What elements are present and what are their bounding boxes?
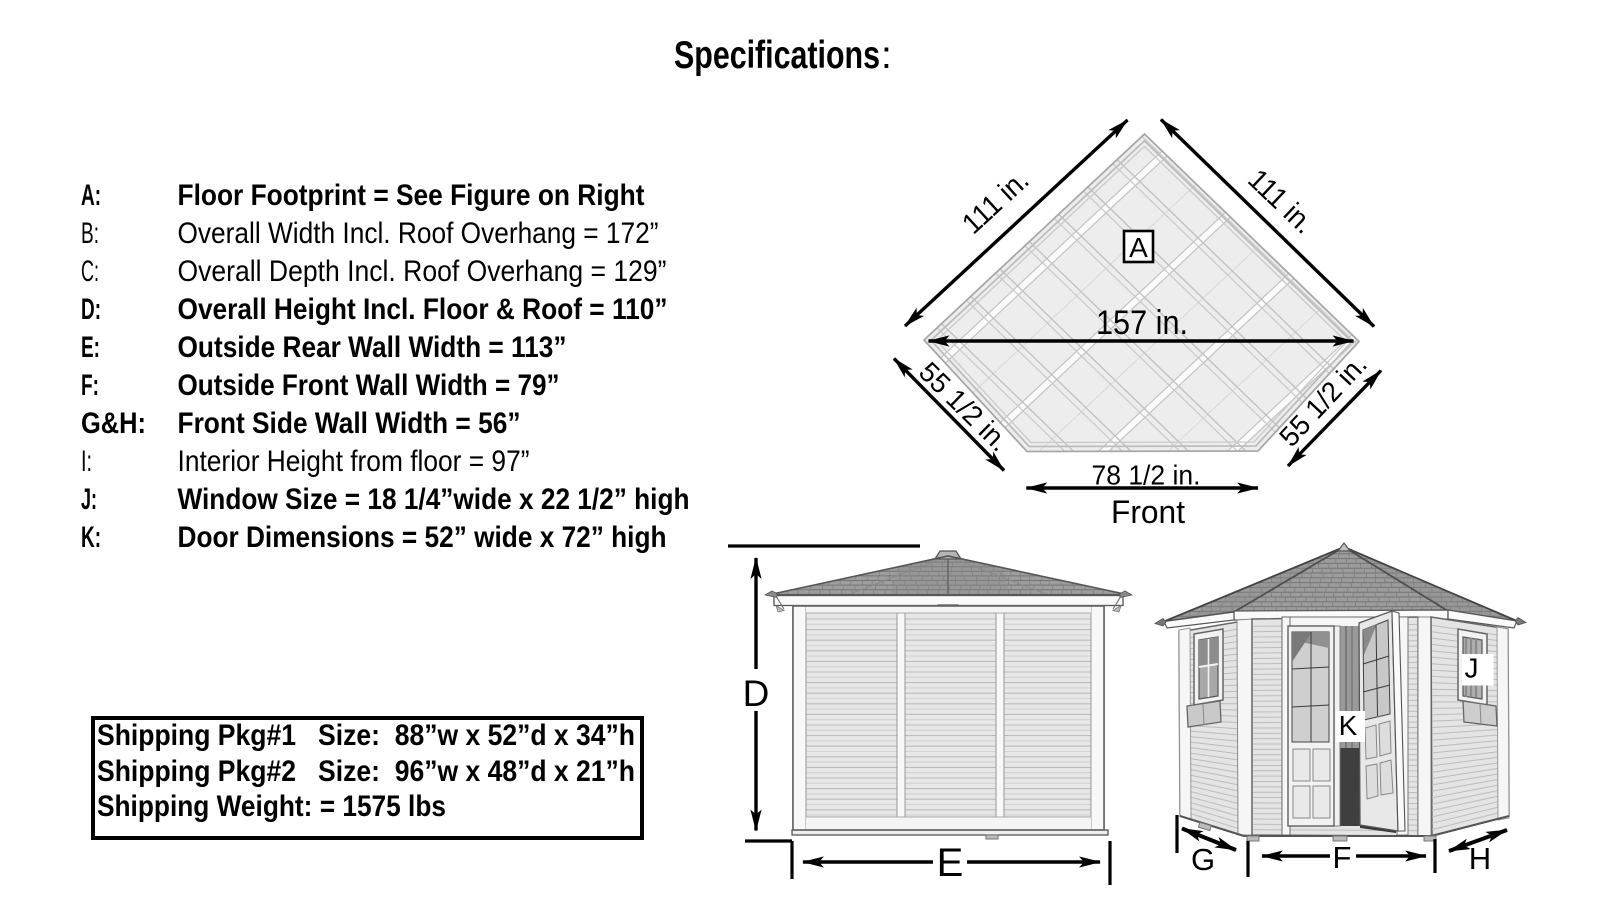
svg-text:J: J xyxy=(1465,653,1479,684)
svg-text:H: H xyxy=(1469,841,1491,876)
svg-text:Shipping Pkg#1 Size: 88”w x: Shipping Pkg#1 Size: 88”w x 52”d x 34”h xyxy=(97,719,635,752)
svg-text:E: E xyxy=(937,841,964,885)
svg-text:Overall Height Incl. Floor & R: Overall Height Incl. Floor & Roof = 110” xyxy=(178,293,668,326)
svg-text:Front: Front xyxy=(1111,494,1185,530)
svg-text:K:: K: xyxy=(81,521,101,554)
svg-text:Front Side Wall Width = 56”: Front Side Wall Width = 56” xyxy=(178,407,521,440)
svg-text:Interior Height from floor = 9: Interior Height from floor = 97” xyxy=(178,445,530,478)
svg-text:G: G xyxy=(1191,842,1215,877)
svg-text:F:: F: xyxy=(81,369,99,402)
svg-text:Outside Front Wall Width = 79”: Outside Front Wall Width = 79” xyxy=(178,369,560,402)
svg-text:I:: I: xyxy=(81,445,92,478)
svg-text:Specifications: Specifications xyxy=(674,34,880,77)
svg-text:D: D xyxy=(743,673,770,714)
svg-text:Door Dimensions = 52” wide x 7: Door Dimensions = 52” wide x 72” high xyxy=(178,521,667,554)
svg-text:Overall Depth Incl. Roof Overh: Overall Depth Incl. Roof Overhang = 129” xyxy=(178,255,667,288)
svg-text:157 in.: 157 in. xyxy=(1096,304,1188,342)
svg-text:B:: B: xyxy=(81,217,99,250)
svg-text:D:: D: xyxy=(81,293,101,326)
svg-text:J:: J: xyxy=(81,483,97,516)
svg-text:Outside Rear Wall Width = 113”: Outside Rear Wall Width = 113” xyxy=(178,331,567,364)
svg-text:Overall Width Incl. Roof Overh: Overall Width Incl. Roof Overhang = 172” xyxy=(178,217,659,250)
svg-text:G&H:: G&H: xyxy=(81,407,146,440)
svg-text::: : xyxy=(881,34,892,77)
svg-text:A:: A: xyxy=(81,179,101,212)
svg-text:Shipping Weight: = 1575 lbs: Shipping Weight: = 1575 lbs xyxy=(97,790,446,823)
svg-text:C:: C: xyxy=(81,255,99,288)
svg-text:A: A xyxy=(1129,232,1148,263)
svg-text:Shipping Pkg#2 Size: 96”w x: Shipping Pkg#2 Size: 96”w x 48”d x 21”h xyxy=(97,755,635,788)
svg-text:E:: E: xyxy=(81,331,100,364)
svg-text:78 1/2 in.: 78 1/2 in. xyxy=(1092,460,1201,491)
svg-text:F: F xyxy=(1333,840,1352,875)
svg-text:K: K xyxy=(1339,710,1358,741)
svg-text:Floor Footprint = See Figure o: Floor Footprint = See Figure on Right xyxy=(178,179,645,212)
svg-text:Window Size = 18 1/4”wide x 22: Window Size = 18 1/4”wide x 22 1/2” high xyxy=(178,483,690,516)
